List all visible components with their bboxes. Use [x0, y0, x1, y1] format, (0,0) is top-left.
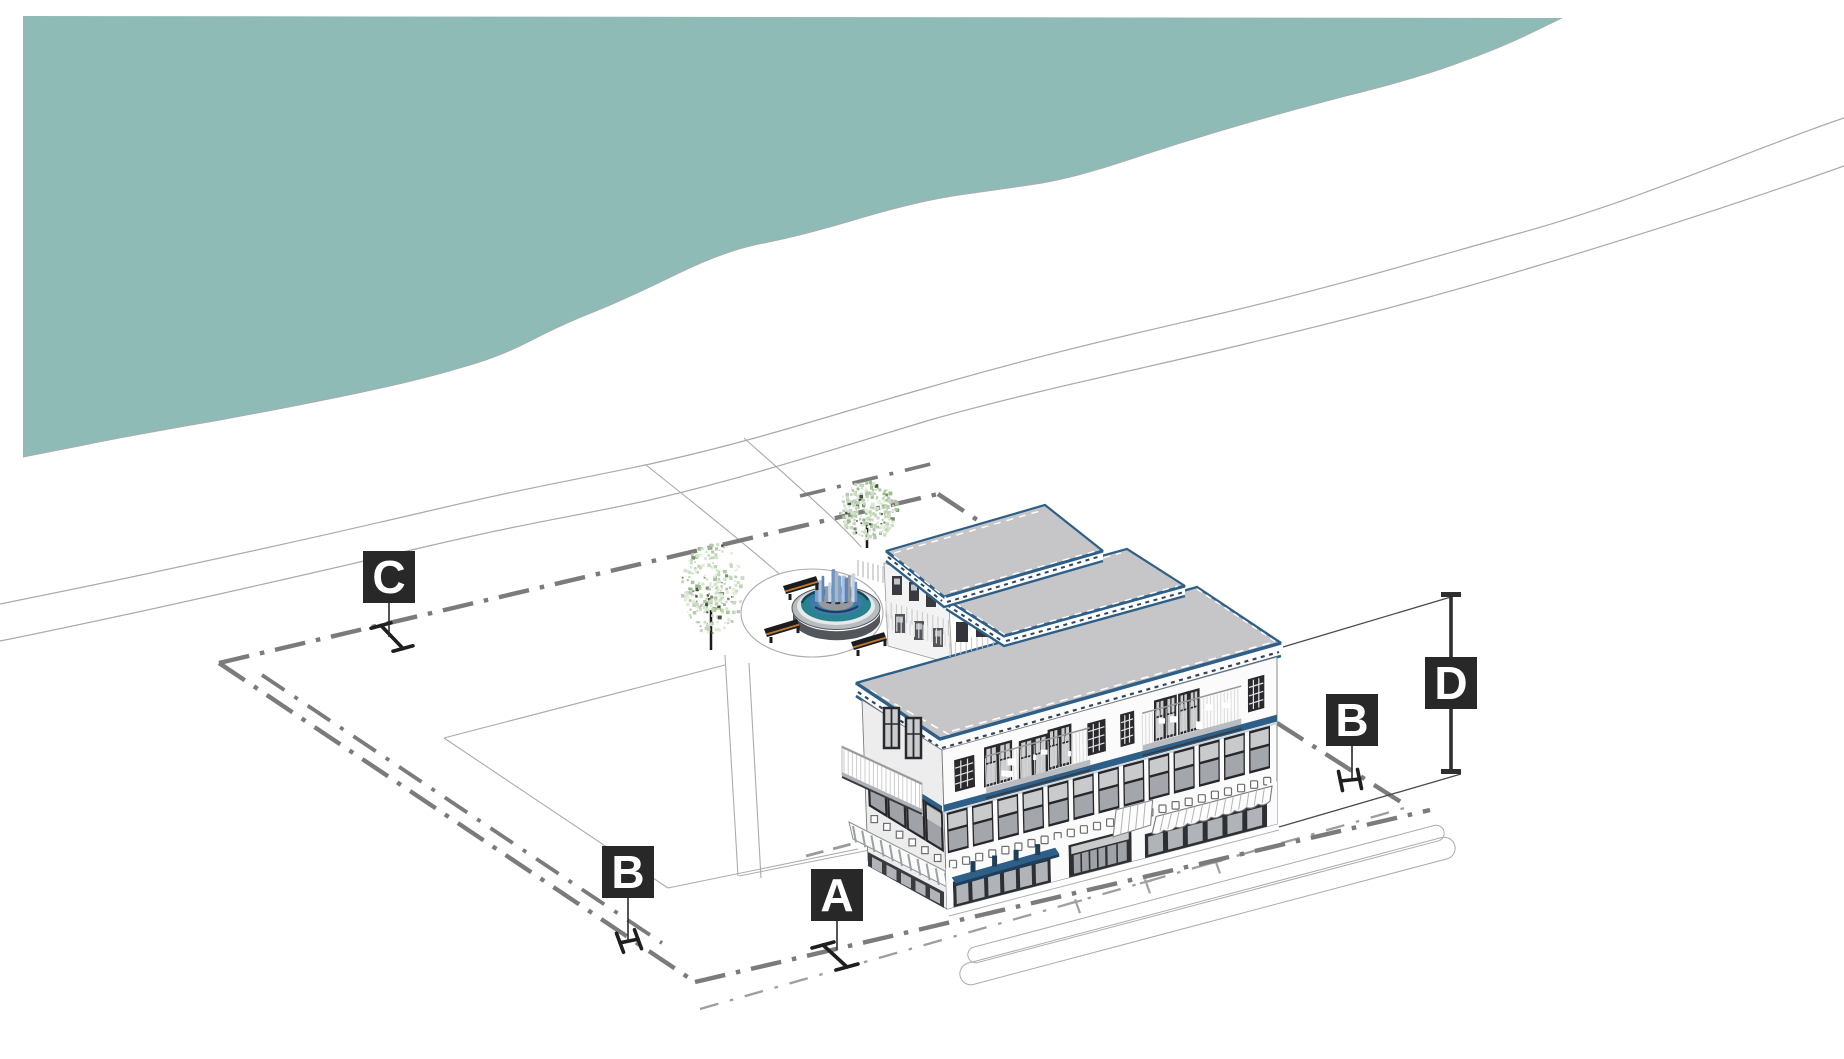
svg-text:C: C [372, 551, 405, 603]
svg-text:B: B [611, 846, 644, 898]
svg-text:B: B [1335, 694, 1368, 746]
svg-text:A: A [820, 869, 853, 921]
svg-text:D: D [1434, 657, 1467, 709]
